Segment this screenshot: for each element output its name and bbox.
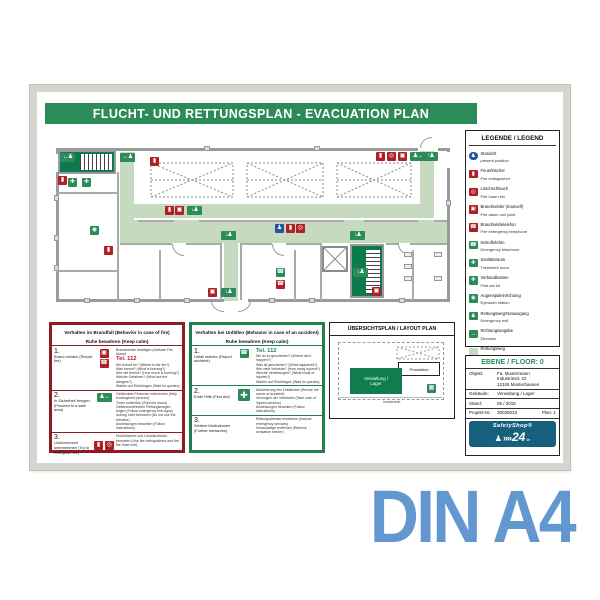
production-hall-racks — [396, 346, 440, 360]
din-a4-caption: DIN A4 — [370, 474, 574, 559]
elevator — [322, 246, 348, 272]
fire-box-header: Verhalten im Brandfall (Behavior in case… — [52, 325, 182, 345]
section-label: Löschversuch unternehmen (Try to extingu… — [54, 441, 94, 455]
exit-sign-up-icon: ↑♟ — [423, 152, 438, 161]
legend-item: ◉ AugenspüleinrichtungEyewash station — [469, 291, 556, 306]
legend-label-de: Verbandkasten — [481, 275, 509, 280]
legend-label-en: Emergency exit — [481, 318, 509, 323]
legend-item: ♟ Rettungsweg/NotausgangEmergency exit — [469, 309, 556, 324]
legend-item: ▣ Brandmelder (manuell)Fire alarm call p… — [469, 202, 556, 217]
first-aid-icon: ✚ — [469, 276, 478, 285]
eyewash-icon: ◉ — [90, 226, 99, 235]
objekt-line1: Fa. Mustermann — [497, 371, 530, 376]
legend-label-de: Rettungsweg/Notausgang — [481, 311, 529, 316]
legend-label-de: Augenspüleinrichtung — [481, 293, 521, 298]
plan-title: FLUCHT- UND RETTUNGSPLAN - EVACUATION PL… — [93, 107, 429, 121]
accident-section-further: 3. Weitere Maßnahmen (Further measures) … — [192, 415, 322, 436]
fire-extinguisher-icon: ▮ — [469, 170, 478, 179]
production-building: Produktion — [398, 362, 440, 376]
layout-plan-map: Produktion Verwaltung / Lager ▦ Industri… — [330, 336, 454, 412]
window-mark — [269, 298, 275, 303]
wall-right-lower — [447, 168, 450, 302]
legend-label-de: Löschschlauch — [481, 186, 509, 191]
fire-extinguisher-icon: ▮ — [376, 152, 385, 161]
fire-hose-icon: ◎ — [387, 152, 396, 161]
accident-section-report: 1. Unfall melden (Report accident) ☎ Tel… — [192, 345, 322, 385]
legend-label-de: Feuerlöscher — [481, 168, 505, 173]
fire-extinguisher-icon: ▮ — [94, 441, 103, 450]
fire-section-report: 1. Brand melden (Report fire) ▣ ☎ Brandm… — [52, 345, 182, 390]
fire-phone-icon: ☎ — [276, 280, 285, 289]
exit-door-arc — [238, 301, 251, 312]
fixture — [404, 252, 412, 257]
projekt-value: 30026033 — [497, 410, 542, 416]
legend-label-en: Direction — [481, 336, 497, 341]
exit-sign-left-icon: ←♟ — [120, 153, 135, 162]
running-man-icon: ♟ — [495, 435, 502, 443]
legend-item: ◎ LöschschlauchFire hose reel — [469, 184, 556, 199]
instruction-line: Brandmelder betätigen (Activate Fire Ala… — [116, 348, 180, 357]
legend-item: ▮ FeuerlöscherFire extinguisher — [469, 166, 556, 181]
treatment-room-icon: ✚ — [469, 259, 478, 268]
info-table: EBENE / FLOOR: 0 Objekt: Fa. Mustermann … — [465, 355, 560, 456]
inner-wall — [56, 270, 117, 272]
legend-item: ✚ VerbandkastenFirst aid kit — [469, 273, 556, 288]
inner-wall — [242, 243, 272, 245]
instruction-line: Welche Verletzungen? (What kinds of inju… — [256, 371, 320, 380]
gebaeude-label: Gebäude: — [469, 391, 497, 397]
instruction-line: Anweisungen beachten (Follow instruction… — [116, 422, 180, 431]
fire-phone-icon: ☎ — [469, 223, 478, 232]
info-row-gebaeude: Gebäude: Verwaltung / Lager — [466, 390, 559, 400]
inner-wall — [286, 243, 320, 245]
legend-label-en: Eyewash station — [481, 300, 510, 305]
info-row-objekt: Objekt: Fa. Mustermann Industriestr. 22 … — [466, 369, 559, 390]
fire-alarm-icon: ▣ — [372, 287, 381, 296]
instruction-line: Schaulustige entfernen (Remove sensation… — [256, 426, 320, 435]
inner-wall — [117, 172, 119, 302]
fixture — [434, 276, 442, 281]
storage-rack — [150, 162, 234, 198]
eyewash-icon: ◉ — [469, 294, 478, 303]
fire-extinguisher-icon: ▮ — [104, 246, 113, 255]
inner-wall — [240, 243, 242, 300]
floor-plan: ←♟ ←♟ ▮ ▮ ✚ ✚ ◉ ▮ ▮ ▣ ↓♟ ♟ ▮ ◎ ↓♟ ↓♟ ☎ ☎… — [54, 140, 454, 315]
logo-tld: de — [526, 439, 530, 443]
instruction-line: Gefährdete Personen mitnehmen (Help enda… — [116, 392, 180, 401]
fire-section-extinguish: 3. Löschversuch unternehmen (Try to exti… — [52, 432, 182, 457]
legend-item: ☎ NotruftelefonEmergency telephone — [469, 238, 556, 253]
floor-header: EBENE / FLOOR: 0 — [466, 356, 559, 369]
standort-icon: ♟ — [469, 152, 478, 161]
instruction-line: Versorgen der Verletzten (Take care of i… — [256, 396, 320, 405]
info-row-stand: Stand: 05 / 2015 — [466, 399, 559, 409]
legend-item: ☎ BrandmeldetelefonFire emergency teleph… — [469, 220, 556, 235]
objekt-line3: 12345 Musterhausen — [497, 382, 539, 387]
door-arc — [272, 244, 284, 256]
legend-box: LEGENDE / LEGEND ♟ Standortpresent posit… — [465, 130, 560, 347]
instruction-line: Feuerlöscher und Löschschlauch benutzen … — [116, 434, 180, 447]
evacuation-plan-sheet: FLUCHT- UND RETTUNGSPLAN - EVACUATION PL… — [37, 92, 563, 463]
legend-item: ♟ Standortpresent position — [469, 149, 556, 164]
inner-wall — [138, 220, 174, 222]
instruction-line: Gekennzeichneten Rettungswegen folgen (F… — [116, 405, 180, 414]
instruction-line: Aufzug nicht benutzen (Do not use the el… — [116, 413, 180, 422]
legend-label-en: Fire hose reel — [481, 194, 505, 199]
window-mark — [54, 235, 59, 241]
window-mark — [54, 265, 59, 271]
accident-section-first-aid: 2. Erste Hilfe (First Aid) ✚ Absicherung… — [192, 385, 322, 415]
logo-number: 24 — [512, 431, 525, 443]
aluminum-frame: FLUCHT- UND RETTUNGSPLAN - EVACUATION PL… — [30, 85, 570, 470]
fire-behavior-box: Verhalten im Brandfall (Behavior in case… — [49, 322, 185, 453]
legend-label-en: Fire emergency telephone — [481, 229, 527, 234]
fixture — [434, 252, 442, 257]
inner-wall — [56, 192, 117, 194]
window-mark — [84, 298, 90, 303]
storage-rack — [336, 162, 412, 198]
fire-alarm-icon: ▣ — [208, 288, 217, 297]
legend-label-de: Rettungsweg — [481, 346, 505, 351]
exit-sign-down-icon: ↓♟ — [221, 231, 236, 240]
exit-sign-down-icon: ↓♟ — [350, 231, 365, 240]
wall-bottom-right — [248, 299, 450, 302]
accident-behavior-box: Verhalten bei Unfällen (Behavior in case… — [189, 322, 325, 453]
safetyshop-logo: SafetyShop® ♟ »» 24 de — [469, 421, 556, 447]
legend-label-en: Fire alarm call point — [481, 212, 516, 217]
inner-wall — [186, 243, 222, 245]
layout-plan-box: ÜBERSICHTSPLAN / LAYOUT PLAN Produktion … — [329, 322, 455, 419]
treatment-room-icon: ✚ — [68, 178, 77, 187]
direction-icon: → — [469, 330, 478, 339]
legend-label-en: present position — [481, 158, 509, 163]
legend-label-de: Brandmeldetelefon — [481, 222, 516, 227]
fire-alarm-icon: ▣ — [175, 206, 184, 215]
window-mark — [314, 146, 320, 151]
inner-wall — [434, 220, 447, 222]
emergency-phone-icon: ☎ — [276, 268, 285, 277]
street-line — [338, 397, 442, 398]
inner-wall — [159, 250, 161, 300]
fire-hose-icon: ◎ — [105, 441, 114, 450]
emergency-phone-icon: ☎ — [469, 241, 478, 250]
window-mark — [134, 298, 140, 303]
section-label: Brand melden (Report fire) — [54, 355, 94, 364]
emergency-exit-icon: ♟ — [469, 312, 478, 321]
window-mark — [204, 146, 210, 151]
fixture — [404, 276, 412, 281]
instruction-line: Welche Gefahren? (What are the dangers?) — [116, 375, 180, 384]
inner-wall — [294, 250, 296, 300]
plan-number: Plan: 1 — [542, 410, 556, 416]
stand-label: Stand: — [469, 401, 497, 407]
street-label: Industriestr. — [330, 400, 454, 404]
fire-extinguisher-icon: ▮ — [286, 224, 295, 233]
window-mark — [184, 298, 190, 303]
first-aid-icon: ✚ — [82, 178, 91, 187]
legend-label-en: Fire extinguisher — [481, 176, 511, 181]
objekt-line2: Industriestr. 22 — [497, 376, 527, 381]
administration-building: Verwaltung / Lager — [350, 368, 402, 394]
assembly-point-icon: ▦ — [427, 384, 436, 393]
fire-hose-icon: ◎ — [296, 224, 305, 233]
objekt-label: Objekt: — [469, 371, 497, 388]
stair-treads — [80, 154, 112, 170]
inner-wall — [120, 243, 172, 245]
projekt-label: Projekt-Nr.: — [469, 410, 497, 416]
fire-box-title: Verhalten im Brandfall (Behavior in case… — [64, 330, 170, 335]
fire-hose-icon: ◎ — [469, 188, 478, 197]
legend-label-de: Standort — [481, 151, 497, 156]
standort-icon: ♟ — [275, 224, 284, 233]
section-label: Weitere Maßnahmen (Further measures) — [194, 424, 234, 433]
window-mark — [54, 195, 59, 201]
instruction-line: Absicherung des Unfallortes (Secure the … — [256, 388, 320, 397]
instruction-line: Warten auf Rückfragen (Wait for queries) — [116, 384, 180, 388]
fire-section-safety: 2. In Sicherheit bringen (Proceed to a s… — [52, 390, 182, 432]
legend-item: ✚ SanitätsraumTreatment room — [469, 255, 556, 270]
fire-alarm-icon: ▣ — [469, 205, 478, 214]
production-label: Produktion — [409, 367, 428, 372]
legend-title: LEGENDE / LEGEND — [469, 133, 556, 146]
emergency-phone-icon: ☎ — [240, 349, 249, 358]
wall-right-upper — [447, 148, 450, 152]
arrow-icon: »» — [503, 434, 511, 443]
inner-wall — [199, 220, 344, 222]
door-arc — [172, 244, 184, 256]
exit-sign-down-icon: ↓♟ — [353, 268, 368, 277]
wall-bottom-left — [56, 299, 224, 302]
fire-alarm-icon: ▣ — [100, 349, 109, 358]
window-mark — [399, 298, 405, 303]
inner-wall — [364, 220, 418, 222]
gebaeude-value: Verwaltung / Lager — [497, 391, 556, 397]
legend-label-de: Sanitätsraum — [481, 257, 506, 262]
legend-item: → RichtungsangabeDirection — [469, 326, 556, 341]
legend-label-de: Notruftelefon — [481, 240, 505, 245]
section-label: Erste Hilfe (First Aid) — [194, 395, 234, 400]
instruction-line: Wo ist es geschehen? (Where did it happe… — [256, 354, 320, 363]
exit-sign-left-icon: ←♟ — [60, 153, 75, 162]
legend-label-en: Treatment room — [481, 265, 509, 270]
first-aid-icon: ✚ — [238, 389, 250, 401]
inner-wall — [410, 243, 447, 245]
legend-label-de: Brandmelder (manuell) — [481, 204, 524, 209]
section-label: In Sicherheit bringen (Proceed to a safe… — [54, 399, 94, 413]
legend-label-en: First aid kit — [481, 283, 500, 288]
storage-rack — [246, 162, 324, 198]
layout-plan-title: ÜBERSICHTSPLAN / LAYOUT PLAN — [330, 323, 454, 336]
exit-sign-down-icon: ↓♟ — [187, 206, 202, 215]
section-label: Unfall melden (Report accident) — [194, 355, 234, 364]
instruction-line: Warten auf Rückfragen (Wait for queries) — [256, 380, 320, 384]
accident-box-title: Verhalten bei Unfällen (Behavior in case… — [195, 330, 318, 335]
inner-wall — [412, 250, 414, 300]
fire-box-subtitle: Ruhe bewahren (Keep calm) — [86, 339, 149, 344]
plan-title-bar: FLUCHT- UND RETTUNGSPLAN - EVACUATION PL… — [45, 103, 477, 124]
instruction-line: Rettungsdienste einweisen (Instruct emer… — [256, 417, 320, 426]
fire-alarm-icon: ▣ — [398, 152, 407, 161]
exit-sign-icon: ♟→ — [97, 393, 112, 402]
window-mark — [309, 298, 315, 303]
fire-extinguisher-icon: ▮ — [58, 176, 67, 185]
fixture — [404, 264, 412, 269]
info-row-projekt: Projekt-Nr.: 30026033 Plan: 1 — [466, 409, 559, 419]
fire-extinguisher-icon: ▮ — [150, 157, 159, 166]
fire-extinguisher-icon: ▮ — [165, 206, 174, 215]
stand-value: 05 / 2015 — [497, 401, 556, 407]
window-mark — [446, 200, 451, 206]
exit-sign-down-icon: ↓♟ — [221, 288, 236, 297]
legend-label-de: Richtungsangabe — [481, 328, 514, 333]
instruction-line: Anweisungen beachten (Follow instruction… — [256, 405, 320, 414]
exit-door-arc — [211, 301, 224, 312]
fire-phone-icon: ☎ — [100, 359, 109, 368]
accident-box-subtitle: Ruhe bewahren (Keep calm) — [226, 339, 289, 344]
escape-route-right — [420, 151, 434, 218]
accident-box-header: Verhalten bei Unfällen (Behavior in case… — [192, 325, 322, 345]
admin-label-line2: Lager — [370, 381, 381, 386]
exit-door-arc — [420, 137, 432, 148]
legend-label-en: Emergency telephone — [481, 247, 520, 252]
